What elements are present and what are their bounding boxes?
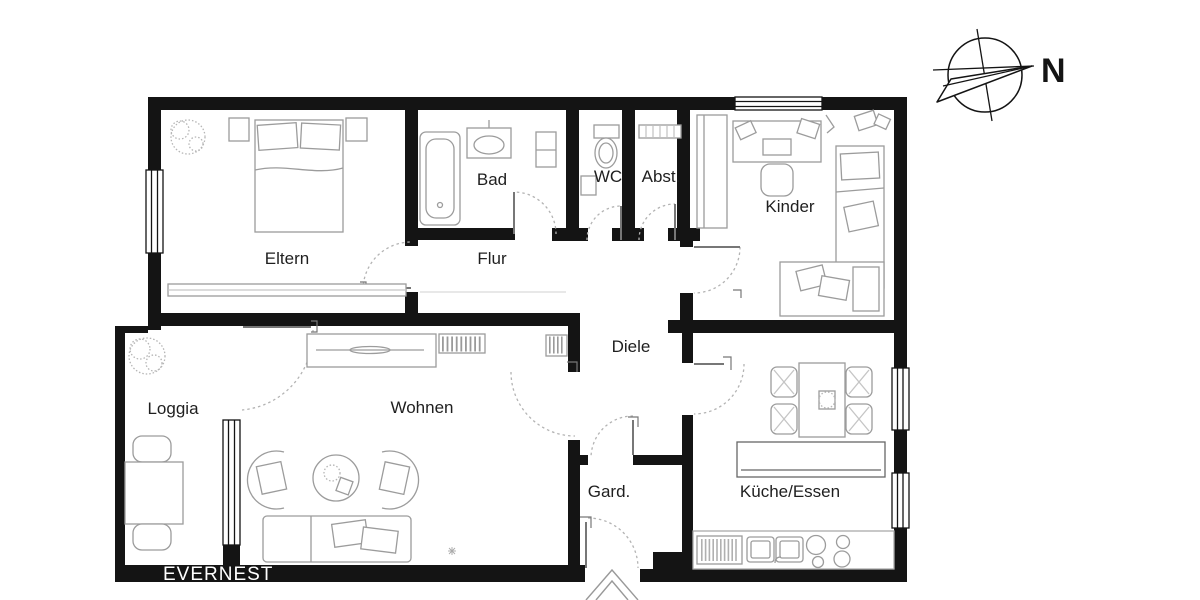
- door-arc-kueche: [694, 364, 744, 414]
- floor-marker: [448, 547, 456, 555]
- window-loggia-wohnen: [223, 420, 240, 545]
- eltern-furniture: [168, 118, 406, 296]
- plant: [171, 120, 205, 154]
- room-label-kueche: Küche/Essen: [740, 482, 840, 501]
- room-label-flur: Flur: [477, 249, 507, 268]
- wardrobe: [697, 115, 727, 228]
- balcony-chair: [133, 436, 171, 462]
- balcony-chair: [133, 524, 171, 550]
- door-arc-entrance: [588, 518, 638, 568]
- kueche-furniture: [693, 363, 894, 569]
- loggia-furniture: [125, 338, 183, 550]
- door-arc-wohnen: [511, 372, 575, 436]
- pillow: [840, 152, 879, 180]
- balcony-table: [125, 462, 183, 524]
- abst-furniture: [639, 125, 681, 138]
- island-counter: [737, 442, 885, 477]
- desk-chair: [761, 164, 793, 196]
- brand-logo: EVERNEST: [163, 564, 273, 585]
- window-kueche-right-1: [892, 368, 909, 430]
- room-label-loggia: Loggia: [147, 399, 199, 418]
- wohnen-furniture: [247, 334, 567, 562]
- compass: N: [933, 29, 1066, 121]
- door-arc-eltern: [363, 242, 411, 290]
- door-arc-gard: [591, 416, 633, 458]
- door-arc-kinder: [694, 247, 740, 293]
- entrance-arrow: [586, 570, 638, 600]
- floorplan-canvas: N Eltern Bad WC Abst. Kinder Flur Diele …: [0, 0, 1200, 600]
- room-label-diele: Diele: [612, 337, 651, 356]
- room-label-bad: Bad: [477, 170, 507, 189]
- monitor: [763, 139, 791, 155]
- room-label-abst: Abst.: [642, 167, 681, 186]
- window-kinder-top: [735, 97, 822, 110]
- door-arc-bad: [514, 192, 556, 234]
- lamp: [826, 115, 834, 133]
- pillow: [300, 123, 340, 150]
- room-label-kinder: Kinder: [765, 197, 814, 216]
- pillow: [257, 123, 298, 151]
- room-label-gard: Gard.: [588, 482, 631, 501]
- window-eltern-left: [146, 170, 163, 253]
- plant: [129, 338, 165, 374]
- room-label-eltern: Eltern: [265, 249, 309, 268]
- toilet-tank: [594, 125, 619, 138]
- window-kueche-right-2: [892, 473, 909, 528]
- door-arc-loggia: [242, 330, 313, 410]
- compass-north-label: N: [1041, 52, 1066, 90]
- room-labels: Eltern Bad WC Abst. Kinder Flur Diele Lo…: [147, 167, 840, 501]
- room-label-wc: WC: [594, 167, 622, 186]
- nightstand: [229, 118, 249, 141]
- coffee-table: [313, 455, 359, 501]
- nightstand: [346, 118, 367, 141]
- room-label-wohnen: Wohnen: [390, 398, 453, 417]
